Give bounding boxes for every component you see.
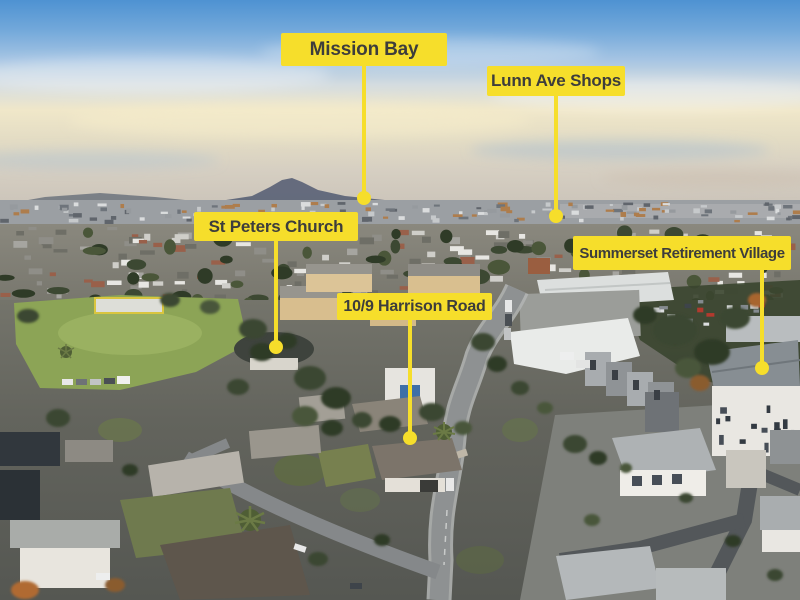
label-summerset-text: Summerset Retirement Village	[579, 245, 784, 262]
label-st-peters-church-text: St Peters Church	[209, 217, 344, 237]
leader-line-lunn-ave-shops	[554, 95, 558, 217]
label-lunn-ave-shops: Lunn Ave Shops	[487, 66, 625, 96]
label-harrison-road-text: 10/9 Harrison Road	[343, 298, 485, 316]
label-mission-bay-text: Mission Bay	[310, 39, 419, 61]
label-harrison-road: 10/9 Harrison Road	[337, 293, 492, 320]
aerial-photo: Mission Bay Lunn Ave Shops St Peters Chu…	[0, 0, 800, 600]
marker-dot-summerset	[755, 361, 769, 375]
leader-line-harrison-road	[408, 319, 412, 439]
leader-line-summerset	[760, 269, 764, 369]
sky	[0, 0, 800, 212]
leader-line-st-peters-church	[274, 240, 278, 348]
label-st-peters-church: St Peters Church	[194, 212, 358, 241]
marker-dot-harrison-road	[403, 431, 417, 445]
marker-dot-lunn-ave-shops	[549, 209, 563, 223]
label-lunn-ave-shops-text: Lunn Ave Shops	[491, 71, 621, 91]
label-summerset-retirement-village: Summerset Retirement Village	[573, 236, 791, 270]
marker-dot-mission-bay	[357, 191, 371, 205]
leader-line-mission-bay	[362, 65, 366, 199]
marker-dot-st-peters-church	[269, 340, 283, 354]
label-mission-bay: Mission Bay	[281, 33, 447, 66]
